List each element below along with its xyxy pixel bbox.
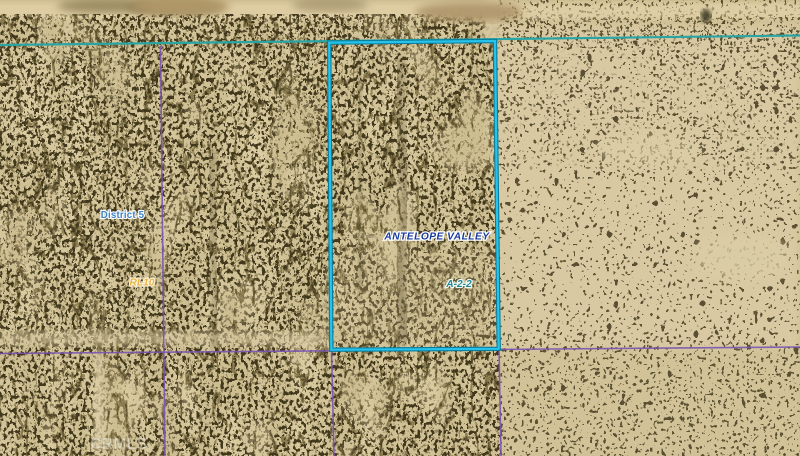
svg-text:ANTELOPE VALLEY: ANTELOPE VALLEY [383,232,490,243]
svg-text:A-2-2: A-2-2 [445,279,472,290]
svg-text:RL10: RL10 [130,277,155,288]
svg-text:District 5: District 5 [101,210,145,221]
svg-text:CRMLS: CRMLS [90,436,148,453]
